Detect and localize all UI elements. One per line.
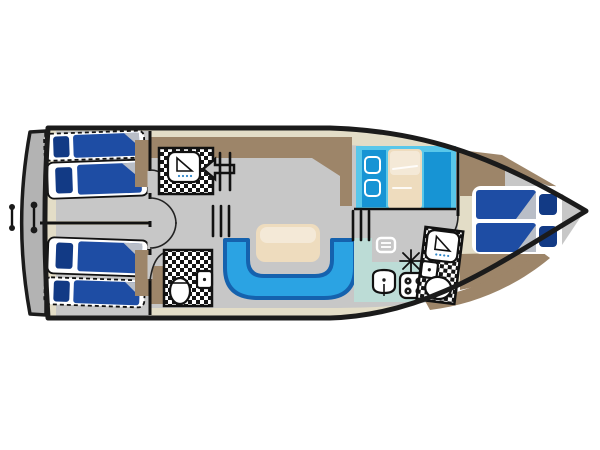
mooring-handle-icon <box>9 204 15 231</box>
door-opening <box>148 171 153 193</box>
pillow <box>53 280 70 302</box>
washbasin-icon <box>197 271 212 288</box>
pillow <box>53 136 70 158</box>
shower-icon <box>425 229 460 263</box>
folding-berth <box>44 130 145 160</box>
bench-seat <box>424 152 451 209</box>
door-opening <box>148 255 153 279</box>
boat-floor-plan <box>0 0 600 450</box>
shower-icon <box>168 152 200 182</box>
toilet-icon <box>170 278 190 304</box>
aft-cabins <box>40 130 150 316</box>
single-berth <box>47 159 148 198</box>
toilet-room <box>164 250 212 306</box>
pillow <box>55 167 73 194</box>
double-berth <box>472 186 562 254</box>
door-opening <box>148 227 153 249</box>
aft-cabin-top-beds <box>44 130 148 199</box>
door-opening <box>148 199 153 221</box>
table-sheen <box>260 227 316 243</box>
floor-plan-canvas <box>0 0 600 450</box>
pillow <box>55 242 73 269</box>
aft-cabin-bottom-beds <box>44 237 148 308</box>
sink-icon <box>373 270 395 296</box>
pillow <box>539 194 557 215</box>
folding-berth <box>44 277 145 307</box>
single-berth <box>47 237 148 276</box>
table-sheen <box>390 151 420 175</box>
star-symbol <box>400 250 422 272</box>
